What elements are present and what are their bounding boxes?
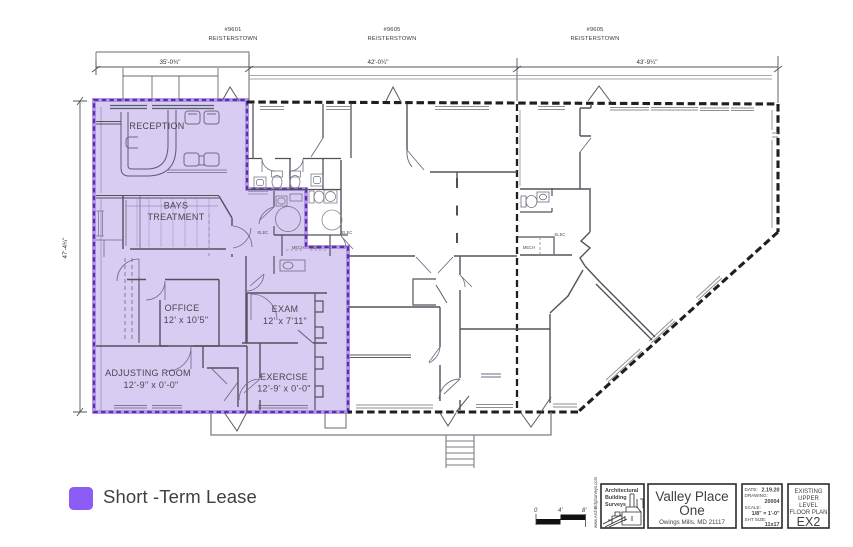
svg-text:UPPER: UPPER	[798, 496, 819, 502]
svg-text:35'-0¾": 35'-0¾"	[160, 59, 181, 66]
svg-text:DRAWING:: DRAWING:	[745, 493, 768, 498]
svg-text:ADJUSTING ROOM: ADJUSTING ROOM	[105, 368, 191, 378]
svg-text:Building: Building	[605, 495, 627, 501]
svg-text:EXAM: EXAM	[272, 304, 299, 314]
svg-text:43'-9¼": 43'-9¼"	[637, 59, 658, 66]
svg-text:MECH: MECH	[292, 245, 304, 250]
svg-text:EX2: EX2	[797, 515, 821, 529]
svg-text:1/8" = 1'-0": 1/8" = 1'-0"	[752, 511, 780, 517]
svg-text:#9605: #9605	[383, 27, 400, 33]
svg-text:REISTERSTOWN: REISTERSTOWN	[368, 36, 417, 42]
svg-text:2.19.20: 2.19.20	[762, 488, 780, 494]
svg-text:11x17: 11x17	[765, 522, 780, 528]
svg-text:47'-4¼": 47'-4¼"	[62, 238, 69, 259]
svg-text:BAYS: BAYS	[164, 201, 189, 211]
svg-text:12’ x 10’5": 12’ x 10’5"	[164, 315, 209, 325]
svg-text:42'-0¼": 42'-0¼"	[368, 59, 389, 66]
svg-text:OFFICE: OFFICE	[165, 303, 200, 313]
svg-text:SCALE:: SCALE:	[745, 505, 761, 510]
svg-text:DATE:: DATE:	[745, 487, 758, 492]
svg-text:SHT SIZE:: SHT SIZE:	[745, 517, 767, 522]
svg-text:REISTERSTOWN: REISTERSTOWN	[209, 36, 258, 42]
svg-text:Valley Place: Valley Place	[655, 489, 728, 504]
svg-text:Short -Term Lease: Short -Term Lease	[103, 486, 257, 507]
svg-text:LEVEL: LEVEL	[799, 503, 818, 509]
svg-text:ELEC: ELEC	[342, 230, 353, 235]
svg-text:#9601: #9601	[224, 27, 241, 33]
svg-text:EXISTING: EXISTING	[794, 489, 822, 495]
svg-text:Architectural: Architectural	[605, 488, 639, 494]
svg-text:EXERCISE: EXERCISE	[260, 372, 308, 382]
svg-text:ELEC: ELEC	[555, 232, 566, 237]
svg-text:REISTERSTOWN: REISTERSTOWN	[571, 36, 620, 42]
svg-text:#9605: #9605	[586, 27, 603, 33]
svg-text:www.ArchBldgSurveys.com: www.ArchBldgSurveys.com	[593, 476, 598, 528]
svg-text:One: One	[679, 503, 705, 518]
svg-text:12’ x 7’11": 12’ x 7’11"	[263, 316, 307, 326]
svg-text:12’-9’ x 0’-0": 12’-9’ x 0’-0"	[257, 384, 311, 394]
svg-text:Owings Mills, MD 21117: Owings Mills, MD 21117	[659, 519, 725, 526]
svg-text:ELEC: ELEC	[258, 230, 269, 235]
svg-text:20004: 20004	[765, 499, 780, 505]
svg-text:Surveys: Surveys	[605, 502, 626, 508]
svg-text:MECH: MECH	[523, 245, 535, 250]
svg-text:12’-9" x 0’-0": 12’-9" x 0’-0"	[123, 380, 178, 390]
svg-text:TREATMENT: TREATMENT	[147, 212, 204, 222]
svg-text:MECH: MECH	[310, 245, 322, 250]
svg-text:RECEPTION: RECEPTION	[129, 121, 184, 131]
